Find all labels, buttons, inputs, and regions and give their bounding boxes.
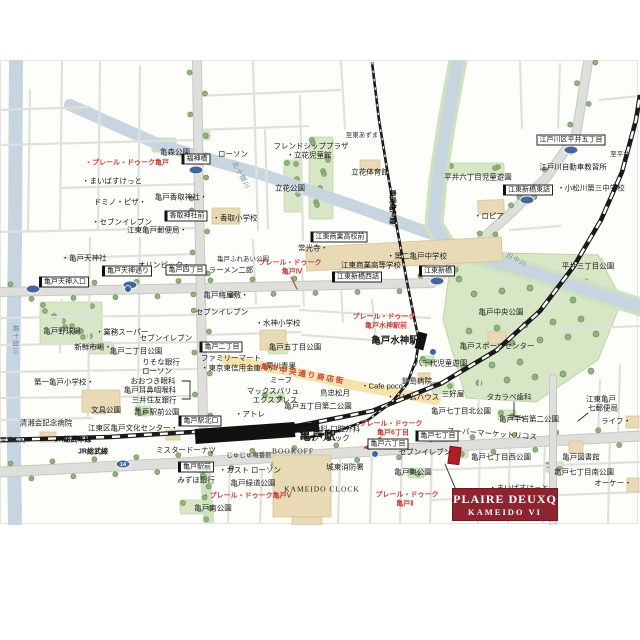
- property-name: PLAIRE DEUXQ: [453, 492, 557, 507]
- page: { "banner": { "line1": "PLAIRE DEUXQ", "…: [0, 0, 640, 640]
- svg-text:14: 14: [120, 462, 127, 468]
- property-name-sub: KAMEIDO VI: [453, 507, 557, 517]
- map-canvas: 14: [0, 0, 640, 640]
- property-banner: PLAIRE DEUXQ KAMEIDO VI: [453, 489, 557, 520]
